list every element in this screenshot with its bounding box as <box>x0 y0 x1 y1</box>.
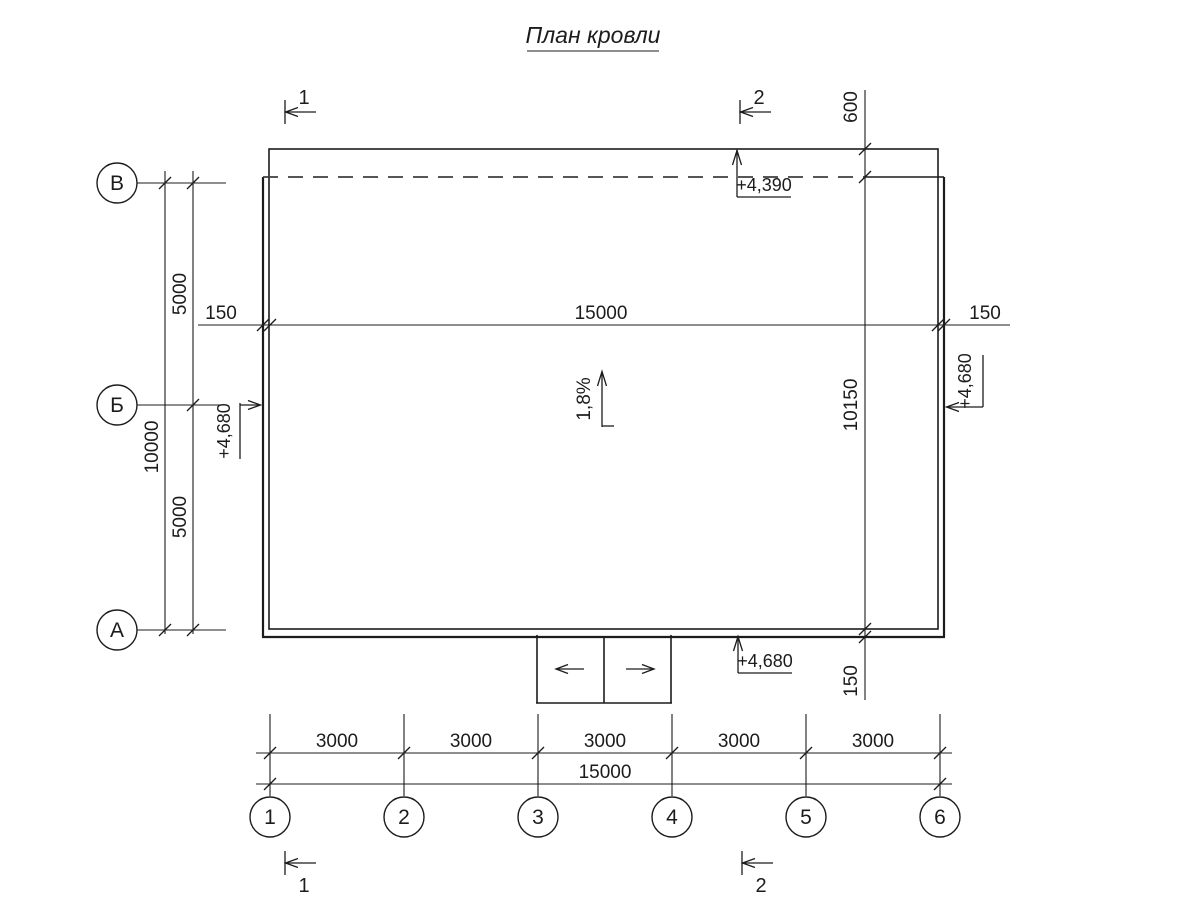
drawing-canvas: План кровли В Б А <box>0 0 1200 900</box>
dim-bay-5: 3000 <box>852 731 894 752</box>
bottom-dimensions: 3000 3000 3000 3000 3000 15000 1 2 3 4 5… <box>250 714 960 837</box>
axis-label-v: В <box>110 172 124 195</box>
page-title: План кровли <box>526 22 661 48</box>
elevation-bottom-value: +4,680 <box>737 651 793 671</box>
section-2-label-bottom: 2 <box>755 875 766 897</box>
dim-roof-span: 15000 <box>575 303 628 324</box>
slope-value: 1,8% <box>574 377 595 420</box>
dim-parapet-right: 150 <box>969 303 1001 324</box>
section-mark-2-top: 2 <box>740 87 771 124</box>
axis-label-6: 6 <box>934 806 946 829</box>
column-axis-bubbles: 1 2 3 4 5 6 <box>250 797 960 837</box>
section-mark-1-bottom: 1 <box>285 851 316 897</box>
section-1-label-top: 1 <box>298 87 309 109</box>
axis-label-a: А <box>110 619 124 642</box>
elevation-top-value: +4,390 <box>736 175 792 195</box>
axis-label-1: 1 <box>264 806 276 829</box>
elevation-mark-left: +4,680 <box>214 401 261 460</box>
section-mark-1-top: 1 <box>285 87 316 124</box>
section-1-label-bottom: 1 <box>298 875 309 897</box>
dim-bay-4: 3000 <box>718 731 760 752</box>
dim-right-span: 10150 <box>841 379 862 432</box>
dim-left-upper: 5000 <box>170 273 191 315</box>
dim-left-lower: 5000 <box>170 496 191 538</box>
dim-bay-2: 3000 <box>450 731 492 752</box>
section-2-label-top: 2 <box>753 87 764 109</box>
dim-bottom-total: 15000 <box>579 762 632 783</box>
elevation-mark-top: +4,390 <box>733 150 792 197</box>
row-axes: В Б А 5000 10000 5000 <box>97 163 226 650</box>
right-vertical-dimension: 600 10150 150 <box>841 90 871 700</box>
mid-horizontal-dimension: 150 15000 150 <box>198 303 1010 331</box>
roof-plan-drawing: План кровли В Б А <box>0 0 1200 900</box>
dim-bay-3: 3000 <box>584 731 626 752</box>
axis-label-3: 3 <box>532 806 544 829</box>
roof-upper-rect <box>269 149 938 629</box>
slope-indicator: 1,8% <box>574 372 614 428</box>
elevation-right-value: +4,680 <box>955 353 975 409</box>
canopy-block <box>536 635 672 703</box>
roof-outline-upper <box>269 149 938 629</box>
dim-left-total: 10000 <box>142 421 163 474</box>
dim-parapet-left: 150 <box>205 303 237 324</box>
section-mark-2-bottom: 2 <box>742 851 773 897</box>
axis-label-5: 5 <box>800 806 812 829</box>
elevation-mark-bottom: +4,680 <box>734 636 793 673</box>
dim-right-offset-top: 600 <box>841 91 862 123</box>
axis-label-4: 4 <box>666 806 678 829</box>
axis-label-b: Б <box>110 394 124 417</box>
dim-bay-1: 3000 <box>316 731 358 752</box>
dim-right-offset-bottom: 150 <box>841 665 862 697</box>
elevation-mark-right: +4,680 <box>947 353 984 411</box>
drawing-title: План кровли <box>526 22 661 51</box>
axis-label-2: 2 <box>398 806 410 829</box>
elevation-left-value: +4,680 <box>214 403 234 459</box>
